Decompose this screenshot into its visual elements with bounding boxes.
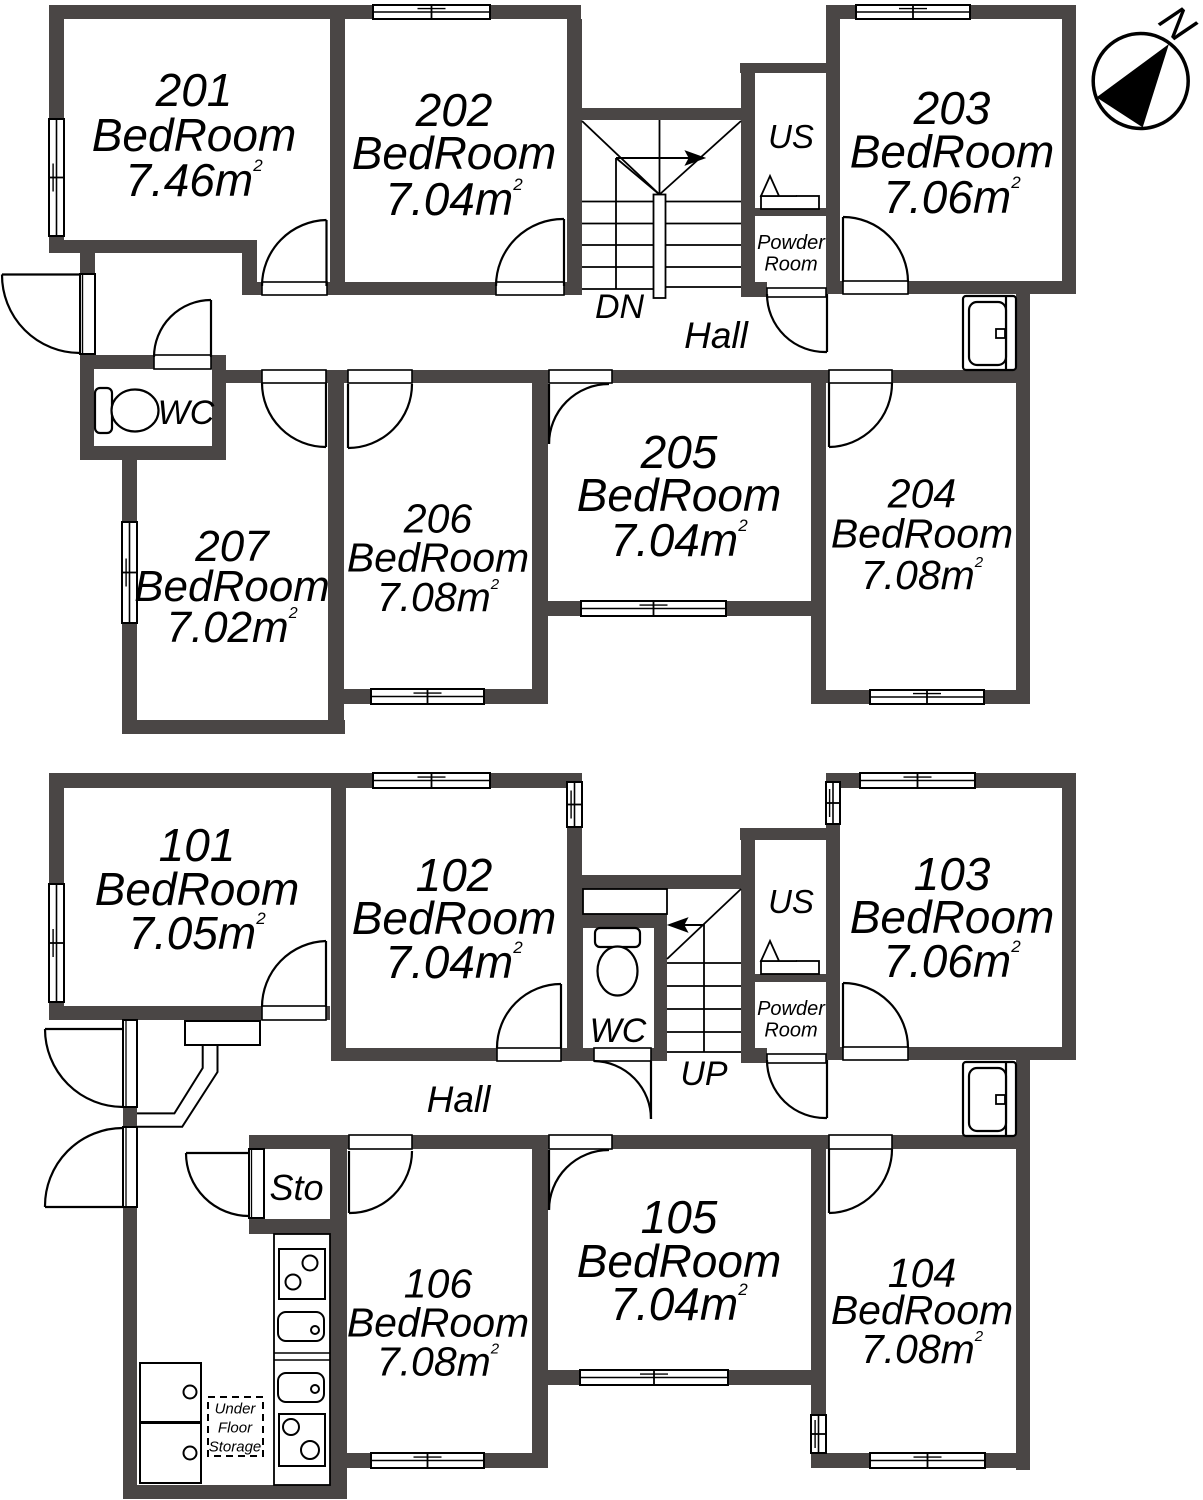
svg-text:7.04m2: 7.04m2: [610, 1278, 748, 1330]
svg-text:7.08m2: 7.08m2: [377, 574, 500, 620]
svg-text:UP: UP: [680, 1055, 728, 1093]
svg-text:Hall: Hall: [427, 1079, 493, 1120]
svg-text:7.06m2: 7.06m2: [883, 935, 1021, 987]
svg-text:7.08m2: 7.08m2: [861, 552, 984, 598]
svg-text:BedRoom: BedRoom: [831, 511, 1013, 557]
svg-text:Powder: Powder: [757, 232, 826, 254]
svg-text:7.04m2: 7.04m2: [385, 173, 523, 225]
svg-text:Room: Room: [764, 1020, 817, 1042]
svg-text:WC: WC: [590, 1012, 647, 1050]
svg-text:Powder: Powder: [757, 998, 826, 1020]
svg-text:7.05m2: 7.05m2: [128, 907, 266, 959]
svg-text:WC: WC: [158, 394, 215, 432]
svg-text:7.04m2: 7.04m2: [385, 936, 523, 988]
svg-text:Floor: Floor: [218, 1420, 253, 1437]
svg-text:7.02m2: 7.02m2: [166, 603, 297, 652]
svg-text:7.46m2: 7.46m2: [125, 154, 263, 206]
svg-text:7.06m2: 7.06m2: [883, 171, 1021, 223]
svg-text:Hall: Hall: [684, 315, 750, 356]
svg-text:DN: DN: [595, 288, 645, 326]
svg-text:Room: Room: [764, 254, 817, 276]
svg-text:US: US: [768, 883, 814, 920]
svg-text:7.08m2: 7.08m2: [861, 1326, 984, 1372]
svg-text:BedRoom: BedRoom: [850, 126, 1055, 178]
svg-text:Storage: Storage: [209, 1439, 262, 1456]
svg-text:US: US: [768, 118, 814, 155]
svg-text:7.04m2: 7.04m2: [610, 514, 748, 566]
svg-text:Under: Under: [215, 1401, 257, 1418]
svg-text:7.08m2: 7.08m2: [377, 1339, 500, 1385]
svg-text:Sto: Sto: [269, 1167, 323, 1208]
svg-text:BedRoom: BedRoom: [352, 127, 557, 179]
